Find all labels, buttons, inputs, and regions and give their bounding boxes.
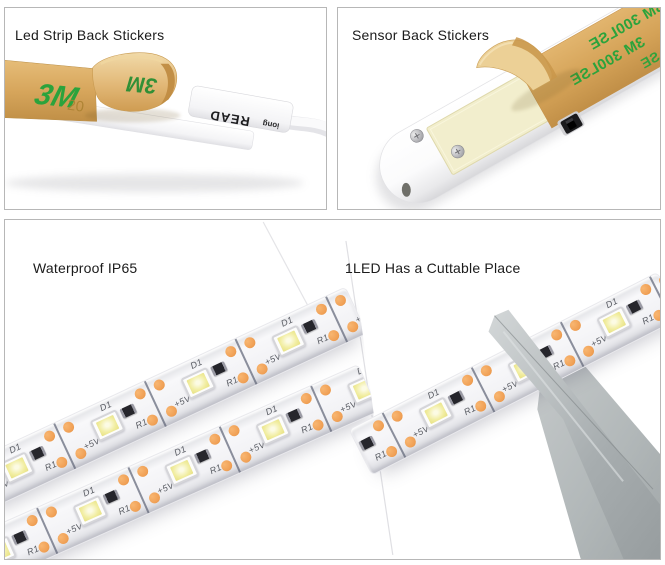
panel-led-strip-stickers: Led Strip Back Stickers [4,7,327,210]
flap-3m-logo-mirrored: 3M [125,71,158,99]
soft-shadow [5,174,304,192]
kraft-tape-flat: 3M 20 [5,60,97,122]
label-cuttable: 1LED Has a Cuttable Place [345,260,520,276]
peeled-tape-flap: 3M [85,53,181,123]
panel-sensor-stickers: Sensor Back Stickers [337,7,661,210]
panel-title-sensor-stickers: Sensor Back Stickers [352,27,489,43]
panel-features: Waterproof IP65 1LED Has a Cuttable Plac… [4,219,661,560]
label-waterproof: Waterproof IP65 [33,260,137,276]
panel-title-led-strip-stickers: Led Strip Back Stickers [15,27,164,43]
tape-code-partial: 20 [66,97,85,116]
product-collage: Led Strip Back Stickers [0,0,665,565]
